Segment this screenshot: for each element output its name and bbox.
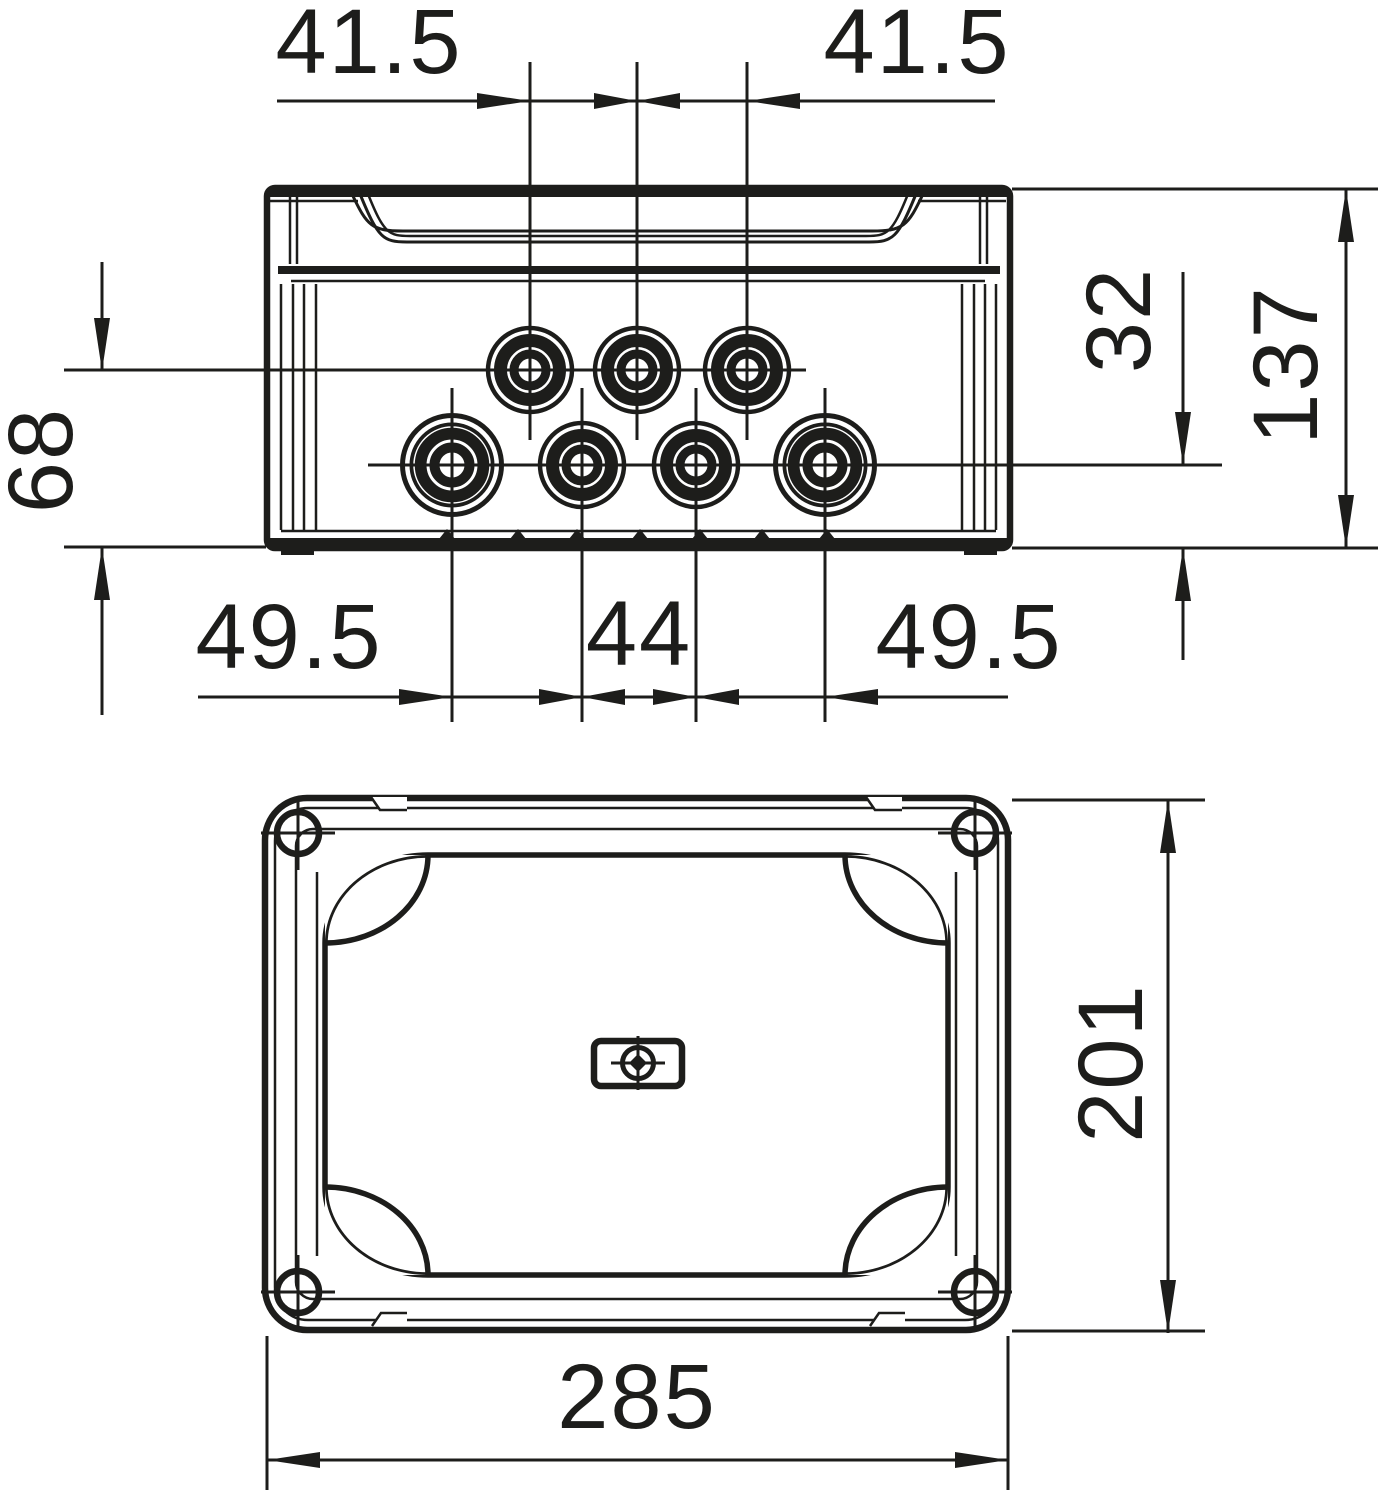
dimension-label-top-pitch-left: 41.5 xyxy=(275,0,462,93)
plan-view xyxy=(261,796,1012,1330)
dimension-plan-depth: 201 xyxy=(1012,800,1205,1333)
dimension-plan-width: 285 xyxy=(267,1336,1008,1490)
drawing-sheet: 41.5 41.5 68 32 137 49.5 44 49.5 xyxy=(0,0,1383,1500)
dimension-label-top-pitch-right: 41.5 xyxy=(823,0,1010,93)
dimension-top-pitch-chain: 41.5 41.5 xyxy=(275,0,1010,109)
technical-drawing: 41.5 41.5 68 32 137 49.5 44 49.5 xyxy=(0,0,1383,1500)
lid-body-joint xyxy=(278,266,1000,274)
foot-right xyxy=(964,548,997,555)
center-knockout-marking xyxy=(594,1036,682,1090)
dimension-label-plan-width: 285 xyxy=(557,1346,717,1448)
dimension-label-box-height: 137 xyxy=(1235,285,1337,445)
dimension-entry-row-gap: 32 xyxy=(1068,267,1191,660)
dimension-label-plan-depth: 201 xyxy=(1060,983,1162,1143)
dimension-label-bottom-pitch-center: 44 xyxy=(586,583,692,685)
dimension-bottom-pitch-chain: 49.5 44 49.5 xyxy=(195,583,1062,705)
dimension-label-entry-row-offset: 68 xyxy=(0,407,92,513)
dimension-label-entry-row-gap: 32 xyxy=(1068,267,1170,373)
lid-screw-bottom-left xyxy=(261,1255,335,1329)
dimension-label-bottom-pitch-right: 49.5 xyxy=(875,586,1062,688)
foot-left xyxy=(281,548,314,555)
bottom-edge xyxy=(267,538,1010,548)
dimension-label-bottom-pitch-left: 49.5 xyxy=(195,586,382,688)
dimension-box-height: 137 xyxy=(1012,189,1378,548)
lid-screw-bottom-right xyxy=(938,1255,1012,1329)
